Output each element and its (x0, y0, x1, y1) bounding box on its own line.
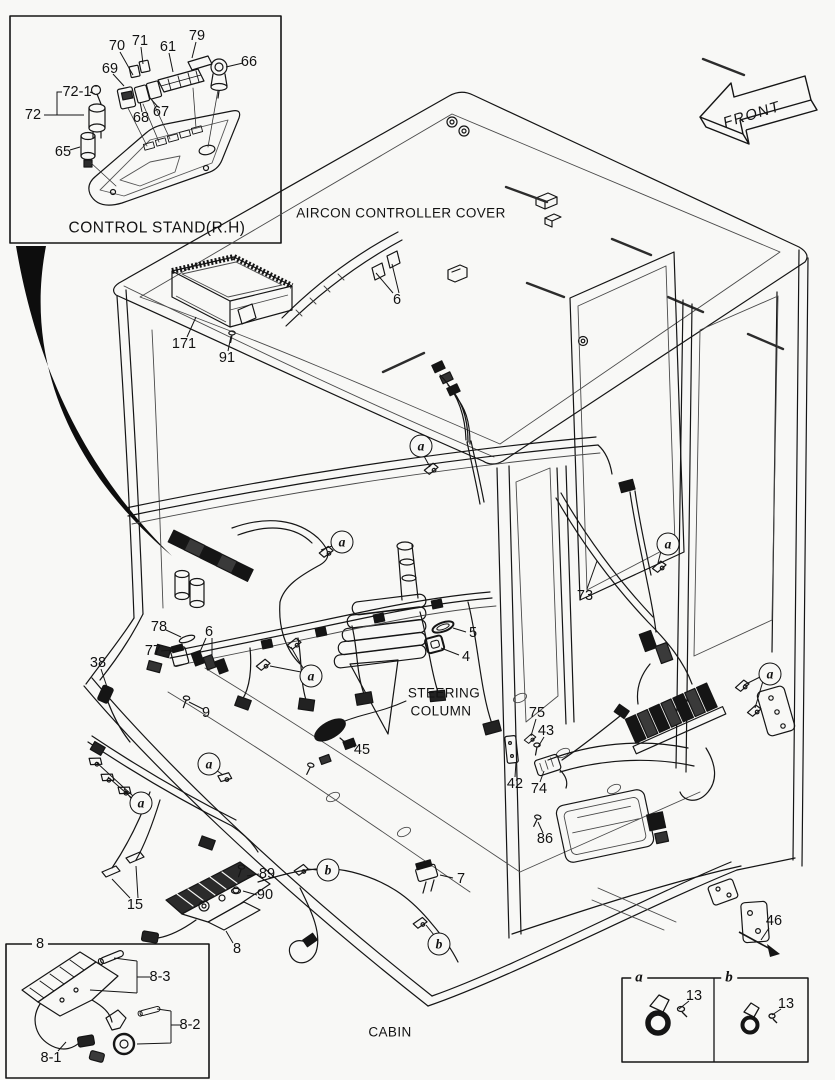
callout-8: 8 (32, 937, 48, 952)
parts-diagram-page: FRONT (0, 0, 835, 1080)
callout-66: 66 (241, 55, 257, 70)
front-arrow-text: FRONT (722, 98, 781, 132)
callout-13: 13 (778, 997, 794, 1012)
inset-pointer-swoosh (16, 246, 172, 556)
callout-43: 43 (538, 724, 554, 739)
steering-column (305, 542, 455, 776)
callout-74: 74 (531, 782, 547, 797)
steering-column-label-line1: STEERING (408, 686, 480, 700)
marker-a: a (657, 533, 680, 556)
callout-13: 13 (686, 989, 702, 1004)
callout-6: 6 (205, 625, 213, 640)
control-stand-title: CONTROL STAND(R.H) (69, 220, 246, 236)
callout-38: 38 (90, 656, 106, 671)
callout-6: 6 (393, 293, 401, 308)
callout-89: 89 (259, 867, 275, 882)
callout-15: 15 (127, 898, 143, 913)
diagram-canvas: FRONT (0, 0, 835, 1080)
callout-68: 68 (133, 111, 149, 126)
callout-8-2: 8-2 (180, 1018, 201, 1033)
callout-72-1: 72-1 (62, 85, 91, 100)
marker-a: a (410, 435, 433, 458)
callout-78: 78 (151, 620, 167, 635)
aircon-cover-label: AIRCON CONTROLLER COVER (296, 206, 505, 220)
callout-65: 65 (55, 145, 71, 160)
callout-90: 90 (257, 888, 273, 903)
callout-9: 9 (202, 706, 210, 721)
callout-69: 69 (102, 62, 118, 77)
callout-8-3: 8-3 (150, 970, 171, 985)
legend-cell-b-letter: b (721, 970, 737, 987)
callout-71: 71 (132, 34, 148, 49)
cabin-label: CABIN (368, 1025, 411, 1039)
callout-75: 75 (529, 706, 545, 721)
cabin-frame (84, 59, 808, 1006)
callout-4: 4 (462, 650, 470, 665)
callout-91: 91 (219, 351, 235, 366)
callout-8-1: 8-1 (41, 1051, 62, 1066)
callout-5: 5 (469, 626, 477, 641)
callout-171: 171 (172, 337, 196, 352)
callout-86: 86 (537, 832, 553, 847)
callout-73: 73 (577, 589, 593, 604)
front-arrow: FRONT (700, 76, 817, 144)
callout-8: 8 (233, 942, 241, 957)
marker-a: a (331, 531, 354, 554)
marker-a: a (759, 663, 782, 686)
marker-a: a (198, 753, 221, 776)
callout-45: 45 (354, 743, 370, 758)
callout-77: 77 (145, 644, 161, 659)
callout-7: 7 (457, 872, 465, 887)
callout-79: 79 (189, 29, 205, 44)
callout-61: 61 (160, 40, 176, 55)
steering-column-label-line2: COLUMN (411, 704, 472, 718)
callout-42: 42 (507, 777, 523, 792)
pedal-inset (6, 944, 209, 1078)
control-stand-inset (10, 16, 281, 243)
marker-b: b (317, 859, 340, 882)
callout-46: 46 (766, 914, 782, 929)
marker-a: a (300, 665, 323, 688)
marker-b: b (428, 933, 451, 956)
marker-a: a (130, 792, 153, 815)
callout-70: 70 (109, 39, 125, 54)
callout-67: 67 (153, 105, 169, 120)
legend-cell-a-letter: a (631, 970, 647, 987)
callout-72: 72 (25, 108, 41, 123)
